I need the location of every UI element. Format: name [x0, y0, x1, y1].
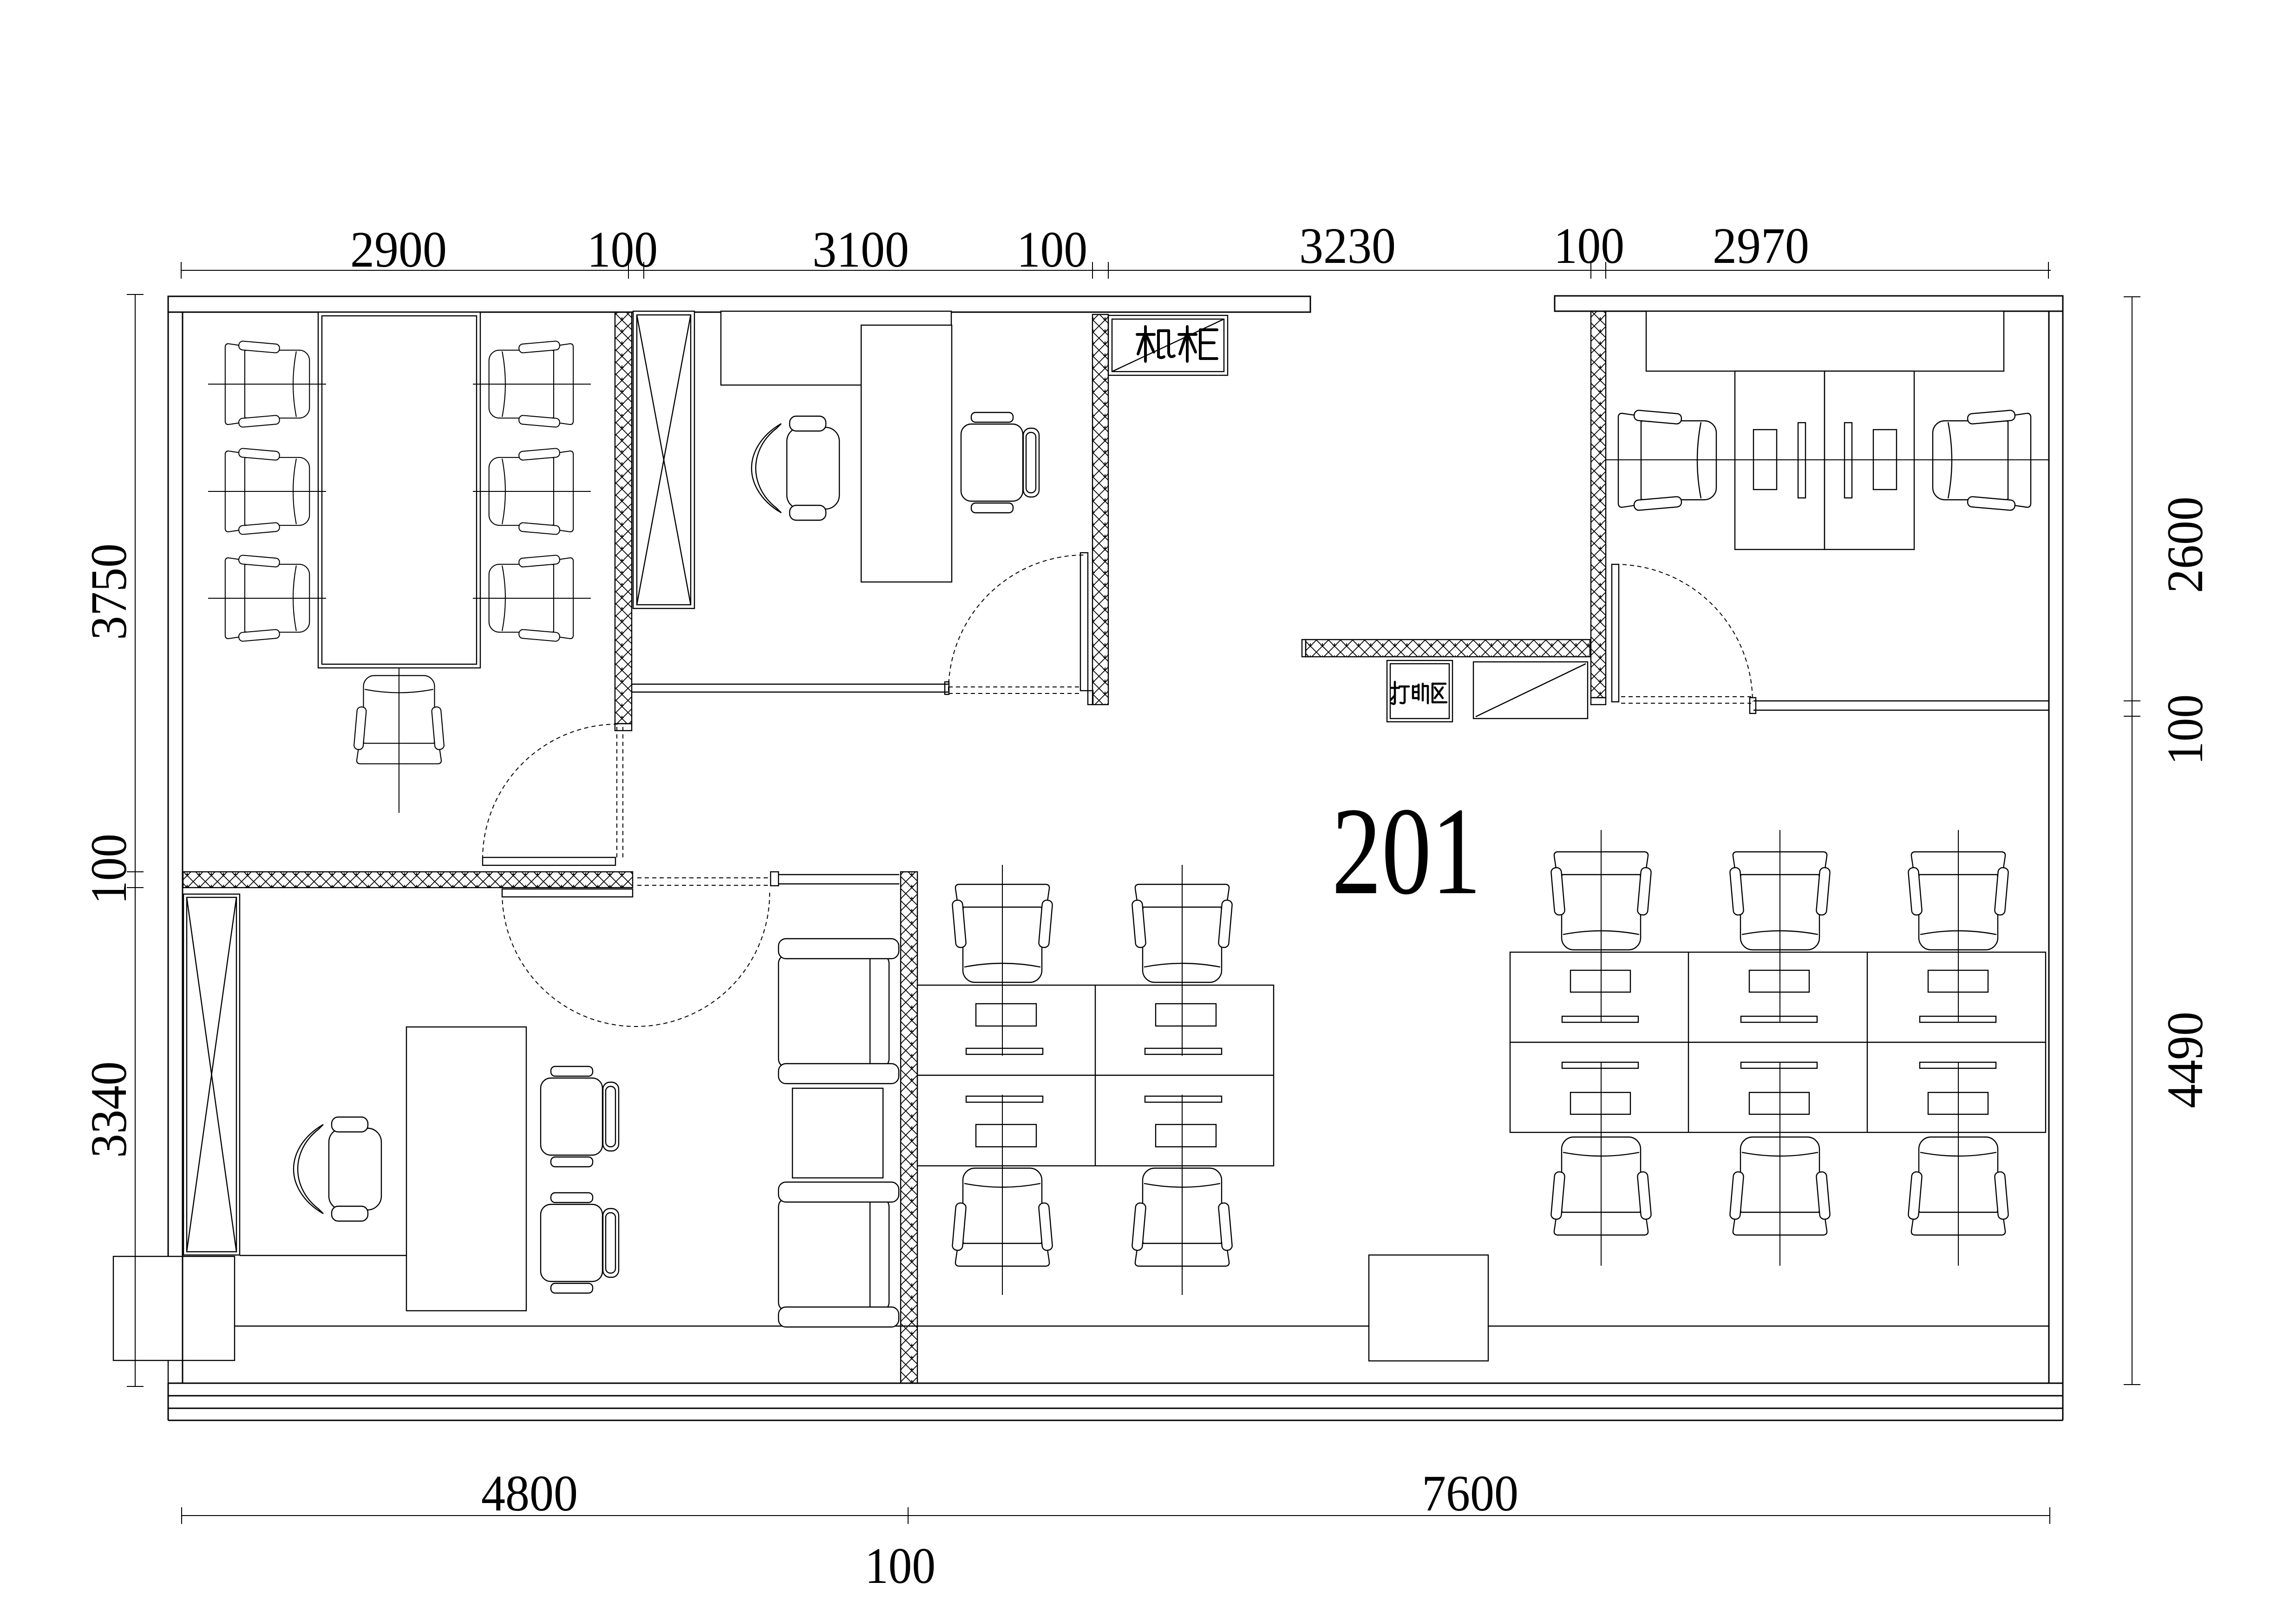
- svg-text:7600: 7600: [1422, 1465, 1518, 1522]
- svg-text:2900: 2900: [350, 221, 447, 278]
- svg-text:3230: 3230: [1299, 217, 1396, 274]
- svg-text:100: 100: [865, 1537, 935, 1594]
- svg-text:2970: 2970: [1713, 217, 1809, 274]
- svg-text:2600: 2600: [2157, 497, 2213, 593]
- svg-text:3340: 3340: [80, 1061, 137, 1158]
- svg-text:100: 100: [1554, 217, 1624, 274]
- svg-text:4800: 4800: [481, 1465, 578, 1522]
- svg-text:100: 100: [1017, 221, 1087, 278]
- svg-text:100: 100: [80, 834, 137, 904]
- svg-text:4490: 4490: [2157, 1012, 2213, 1108]
- svg-text:3750: 3750: [80, 543, 137, 640]
- svg-text:201: 201: [1332, 782, 1481, 921]
- svg-text:3100: 3100: [812, 221, 909, 278]
- svg-text:100: 100: [2157, 694, 2213, 765]
- svg-text:100: 100: [587, 221, 658, 278]
